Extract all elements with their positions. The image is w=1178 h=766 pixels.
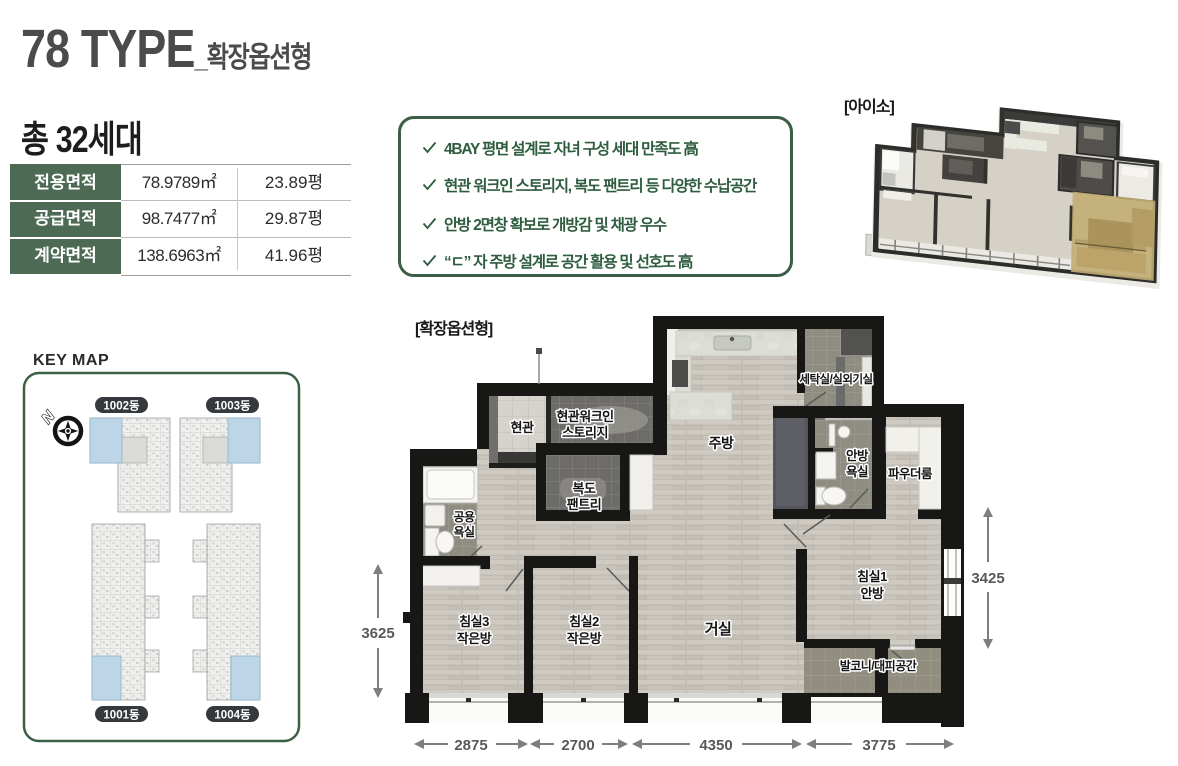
svg-text:침실2: 침실2 [569,614,599,629]
svg-text:2875: 2875 [454,737,487,754]
svg-text:공용: 공용 [453,509,475,524]
svg-text:스토리지: 스토리지 [562,425,608,440]
svg-text:1004동: 1004동 [214,709,251,722]
svg-text:욕실: 욕실 [846,464,868,479]
svg-text:발코니/대피공간: 발코니/대피공간 [840,658,917,673]
svg-text:현관워크인: 현관워크인 [556,409,613,424]
svg-text:욕실: 욕실 [453,524,475,539]
svg-text:거실: 거실 [705,621,732,638]
svg-text:팬트리: 팬트리 [567,497,601,512]
svg-text:안방: 안방 [846,448,869,463]
svg-text:1002동: 1002동 [103,400,140,413]
svg-text:3425: 3425 [971,570,1004,587]
svg-text:작은방: 작은방 [457,631,492,646]
svg-text:주방: 주방 [709,435,734,451]
svg-text:4350: 4350 [699,737,732,754]
svg-text:침실1: 침실1 [857,569,887,584]
svg-text:1001동: 1001동 [103,709,140,722]
svg-text:세탁실/실외기실: 세탁실/실외기실 [799,372,872,386]
svg-text:2700: 2700 [561,737,594,754]
svg-text:1003동: 1003동 [214,400,251,413]
svg-text:파우더룸: 파우더룸 [888,466,933,481]
svg-text:작은방: 작은방 [567,631,602,646]
svg-text:현관: 현관 [511,420,534,435]
svg-text:3775: 3775 [862,737,895,754]
svg-text:침실3: 침실3 [459,614,489,629]
svg-text:3625: 3625 [361,625,394,642]
svg-text:안방: 안방 [861,586,884,601]
svg-text:복도: 복도 [573,481,596,496]
